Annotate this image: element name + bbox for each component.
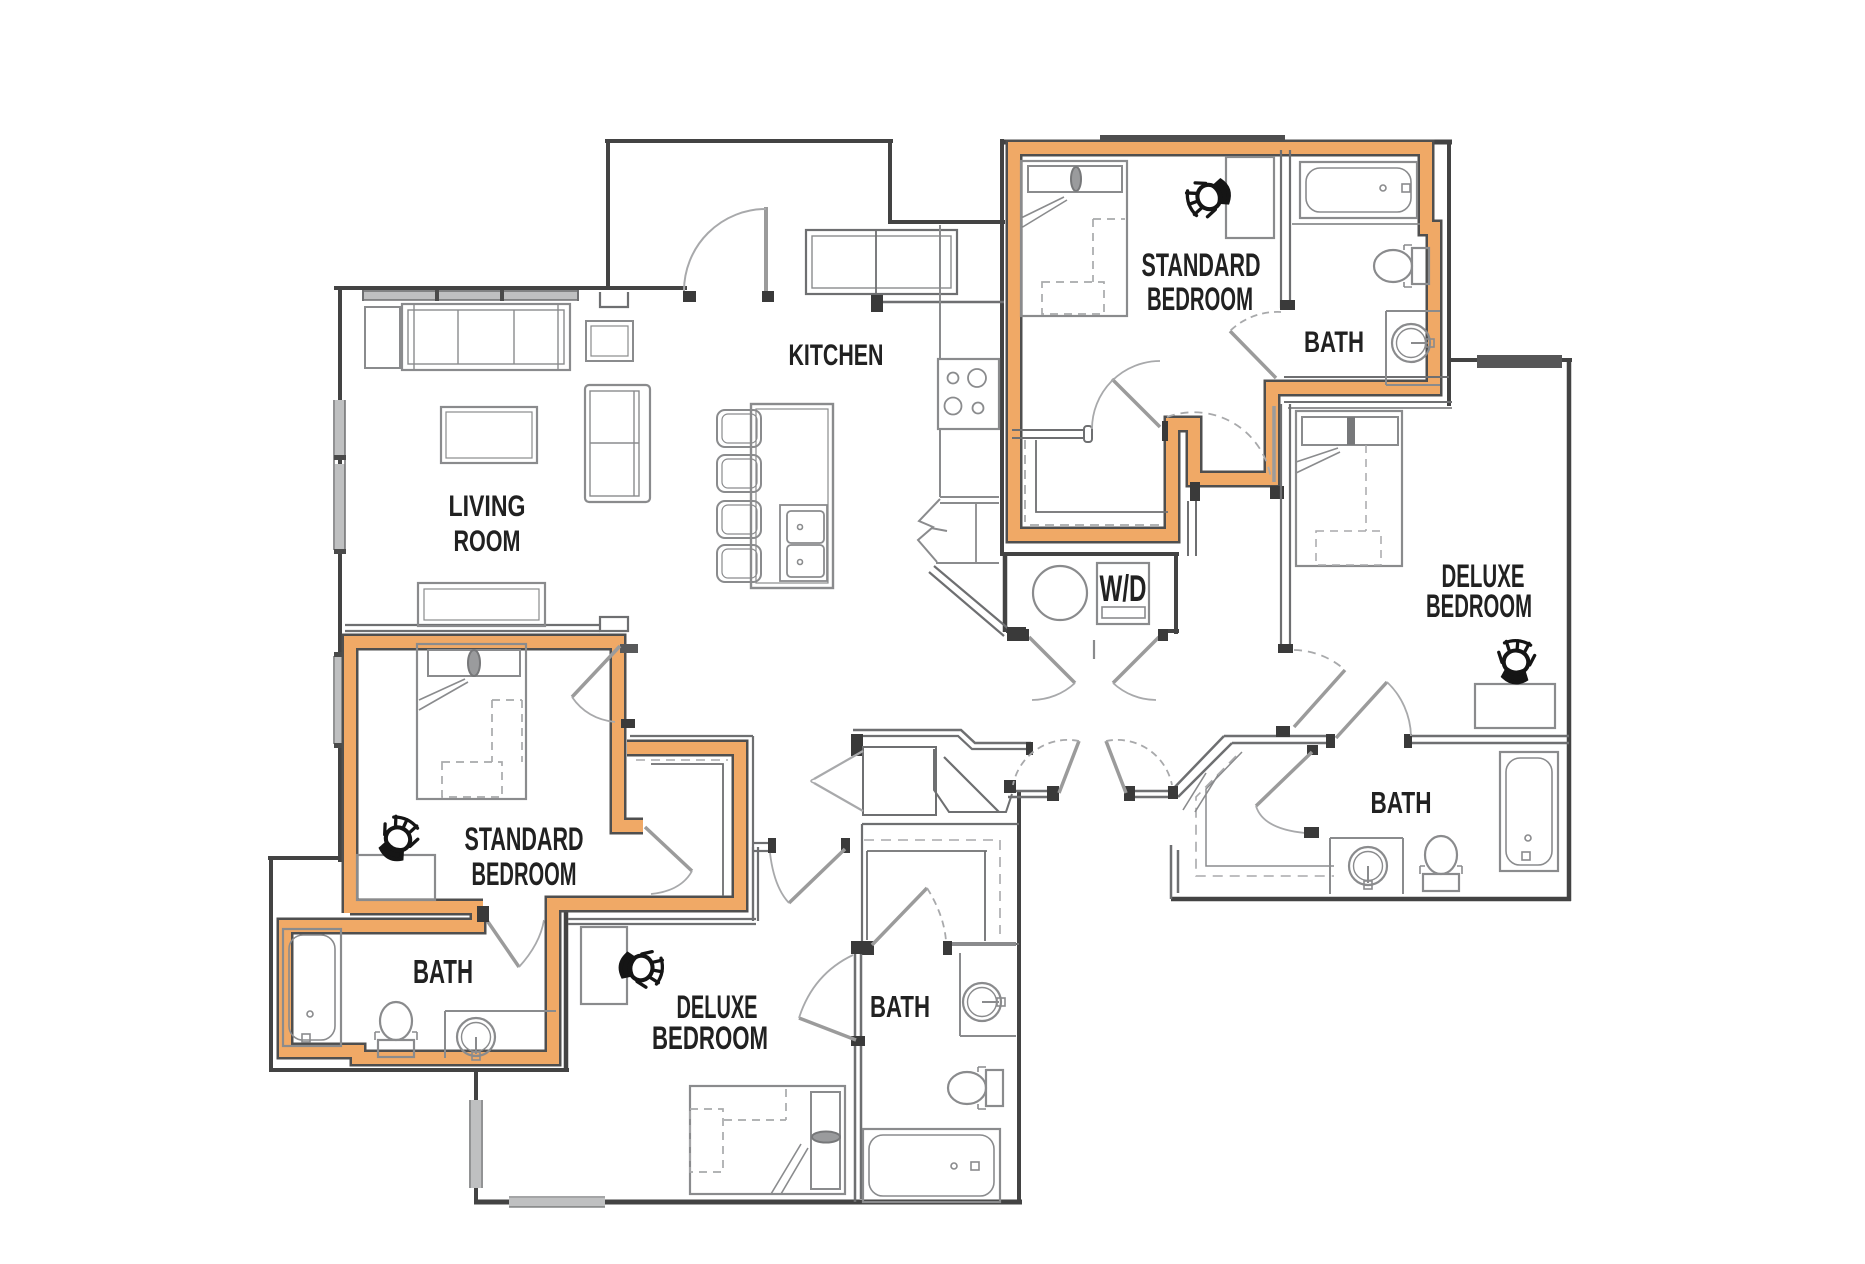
- svg-text:BEDROOM: BEDROOM: [472, 856, 577, 892]
- svg-text:BATH: BATH: [1371, 785, 1432, 820]
- svg-text:BATH: BATH: [413, 953, 473, 990]
- svg-text:BEDROOM: BEDROOM: [1426, 588, 1532, 624]
- svg-text:STANDARD: STANDARD: [1142, 247, 1261, 283]
- svg-text:BEDROOM: BEDROOM: [652, 1020, 768, 1056]
- svg-text:KITCHEN: KITCHEN: [789, 339, 884, 372]
- svg-text:BEDROOM: BEDROOM: [1147, 281, 1253, 317]
- svg-text:STANDARD: STANDARD: [465, 821, 584, 857]
- svg-text:ROOM: ROOM: [454, 525, 521, 558]
- svg-text:BATH: BATH: [870, 989, 930, 1024]
- svg-text:LIVING: LIVING: [449, 490, 526, 523]
- svg-text:W/D: W/D: [1100, 568, 1147, 609]
- svg-text:BATH: BATH: [1304, 326, 1364, 359]
